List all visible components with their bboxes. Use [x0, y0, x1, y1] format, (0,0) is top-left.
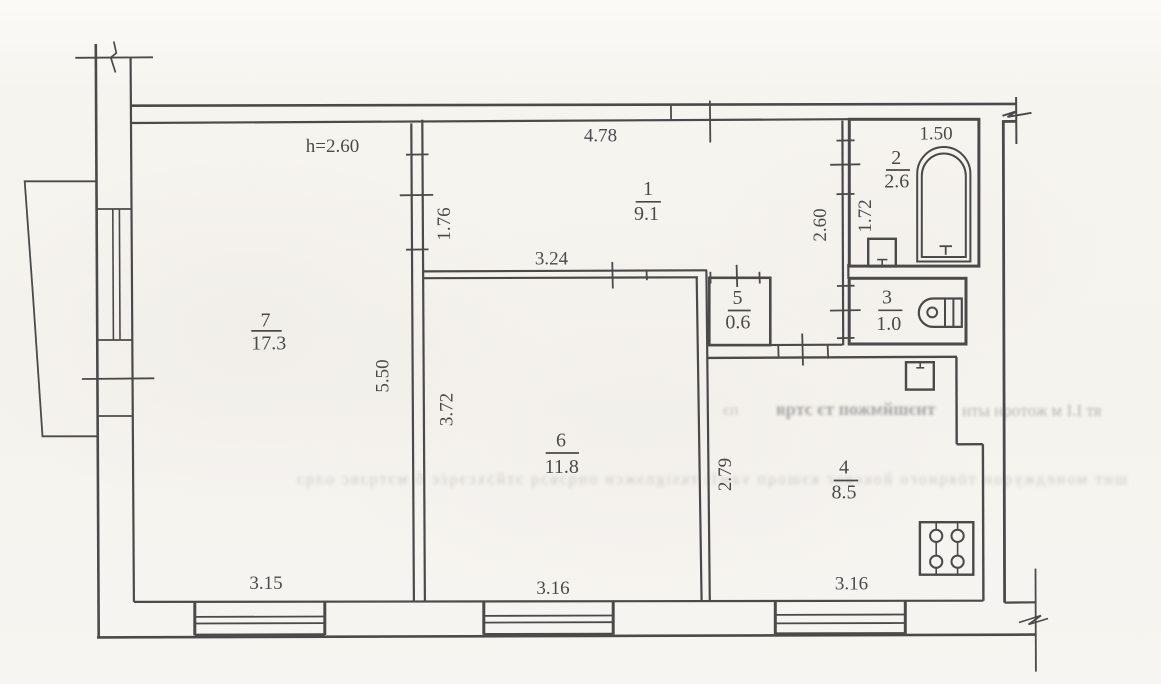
svg-text:3.15: 3.15: [249, 573, 282, 594]
svg-text:8.5: 8.5: [832, 482, 857, 504]
svg-text:4: 4: [839, 456, 849, 478]
svg-text:1.0: 1.0: [876, 313, 901, 335]
svg-text:1.76: 1.76: [434, 207, 455, 240]
svg-text:3.24: 3.24: [535, 249, 569, 270]
svg-text:1.72: 1.72: [855, 199, 876, 232]
svg-text:2.6: 2.6: [884, 170, 909, 192]
svg-text:3.16: 3.16: [835, 574, 868, 595]
svg-text:1: 1: [643, 178, 653, 200]
svg-text:4.78: 4.78: [584, 126, 617, 147]
svg-text:2: 2: [891, 147, 901, 169]
svg-text:5.50: 5.50: [373, 359, 394, 392]
svg-text:3.16: 3.16: [536, 578, 569, 599]
svg-text:2.60: 2.60: [810, 208, 831, 241]
svg-text:9.1: 9.1: [634, 203, 659, 225]
svg-text:1.50: 1.50: [919, 123, 952, 144]
svg-text:11.8: 11.8: [545, 456, 579, 478]
svg-text:17.3: 17.3: [251, 332, 286, 354]
svg-text:h=2.60: h=2.60: [306, 136, 359, 157]
svg-text:3.72: 3.72: [437, 393, 458, 426]
svg-text:7: 7: [261, 310, 271, 332]
svg-text:5: 5: [733, 287, 743, 309]
svg-text:3: 3: [882, 286, 892, 308]
svg-text:2.79: 2.79: [715, 458, 736, 491]
svg-text:6: 6: [556, 429, 566, 451]
svg-text:0.6: 0.6: [725, 311, 750, 333]
